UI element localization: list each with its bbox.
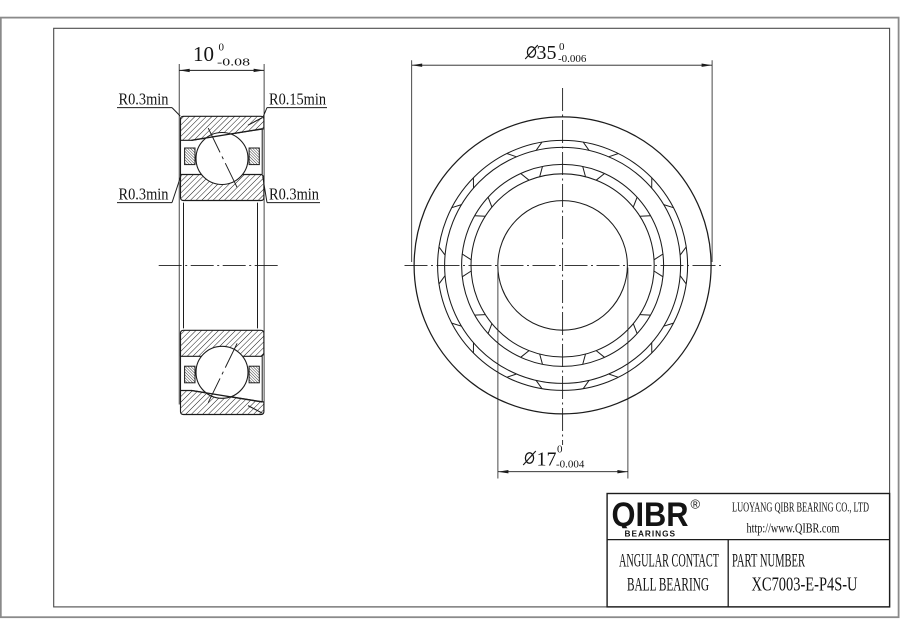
svg-text:http://www.QIBR.com: http://www.QIBR.com	[747, 521, 840, 536]
svg-text:R0.3min: R0.3min	[119, 90, 169, 109]
svg-text:R0.3min: R0.3min	[269, 185, 319, 204]
svg-text:0: 0	[557, 444, 563, 456]
svg-text:17: 17	[537, 448, 557, 470]
svg-text:R0.3min: R0.3min	[119, 185, 169, 204]
svg-text:35: 35	[537, 42, 557, 64]
svg-text:BEARINGS: BEARINGS	[625, 528, 677, 538]
svg-text:LUOYANG QIBR BEARING CO., LTD: LUOYANG QIBR BEARING CO., LTD	[732, 500, 869, 515]
svg-text:-0.08: -0.08	[217, 57, 251, 69]
svg-text:R0.15min: R0.15min	[269, 90, 326, 109]
svg-text:-0.004: -0.004	[556, 459, 585, 471]
svg-text:0: 0	[559, 41, 565, 53]
svg-text:PART NUMBER: PART NUMBER	[732, 551, 805, 572]
svg-text:XC7003-E-P4S-U: XC7003-E-P4S-U	[752, 575, 858, 596]
svg-text:0: 0	[219, 42, 225, 54]
svg-text:®: ®	[691, 497, 701, 512]
svg-text:BALL BEARING: BALL BEARING	[627, 575, 709, 596]
svg-text:10: 10	[193, 42, 214, 66]
svg-text:ANGULAR CONTACT: ANGULAR CONTACT	[619, 551, 719, 572]
svg-text:-0.006: -0.006	[558, 53, 587, 65]
